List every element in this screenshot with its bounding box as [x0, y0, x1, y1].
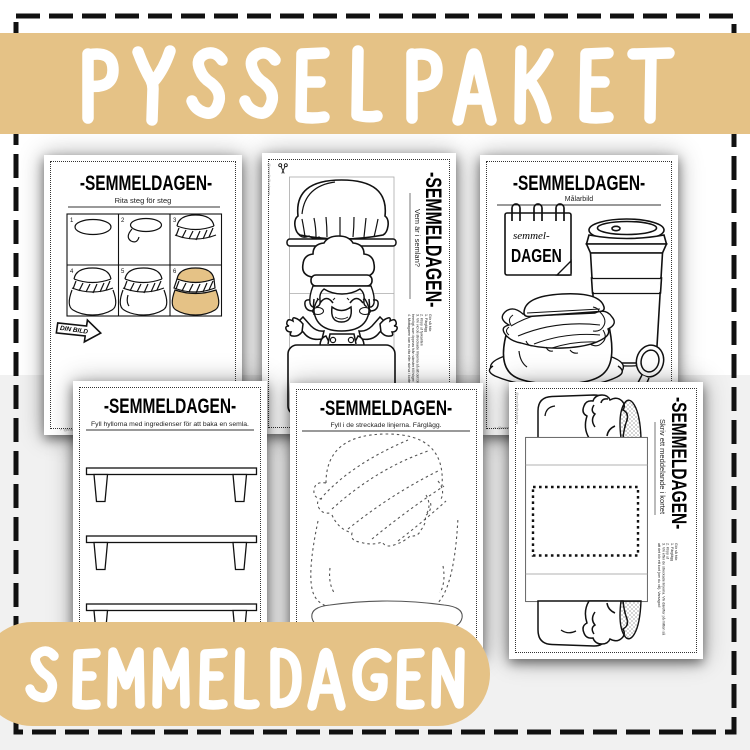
svg-text:4. Mottagaren kan nu rita elle: 4. Mottagaren kan nu rita eller skriva i…: [407, 314, 411, 384]
svg-text:Rita steg för steg: Rita steg för steg: [114, 196, 171, 205]
svg-text:@emelieillustrerar: @emelieillustrerar: [267, 163, 272, 196]
svg-text:2: 2: [121, 218, 125, 224]
svg-text:semmel-: semmel-: [513, 230, 550, 242]
svg-text:4: 4: [70, 269, 74, 275]
svg-text:@emelieillustrerar: @emelieillustrerar: [515, 392, 520, 425]
svg-text:6: 6: [173, 269, 177, 275]
svg-text:att det blir ett kort (om du v: att det blir ett kort (om du vill). Vars…: [657, 543, 661, 607]
svg-text:-SEMMELDAGEN-: -SEMMELDAGEN-: [320, 395, 452, 419]
svg-text:-SEMMELDAGEN-: -SEMMELDAGEN-: [103, 393, 235, 417]
svg-text:-SEMMELDAGEN-: -SEMMELDAGEN-: [79, 170, 211, 194]
svg-text:-SEMMELDAGEN-: -SEMMELDAGEN-: [420, 172, 444, 307]
svg-text:Fyll i de streckade linjerna.: Fyll i de streckade linjerna. Färglägg.: [330, 422, 441, 429]
svg-text:-SEMMELDAGEN-: -SEMMELDAGEN-: [667, 397, 691, 529]
svg-text:Fyll hyllorna med ingredienser: Fyll hyllorna med ingredienser för att b…: [91, 421, 249, 428]
svg-text:Skriv ett meddelande i kortet: Skriv ett meddelande i kortet: [658, 419, 667, 515]
svg-text:Vem är i semlan?: Vem är i semlan?: [413, 209, 422, 267]
svg-text:Målarbild: Målarbild: [565, 195, 594, 203]
svg-text:-SEMMELDAGEN-: -SEMMELDAGEN-: [513, 170, 645, 194]
svg-text:3: 3: [173, 218, 177, 224]
svg-text:5: 5: [121, 269, 125, 275]
svg-text:DAGEN: DAGEN: [511, 246, 562, 266]
svg-text:1: 1: [70, 218, 74, 224]
